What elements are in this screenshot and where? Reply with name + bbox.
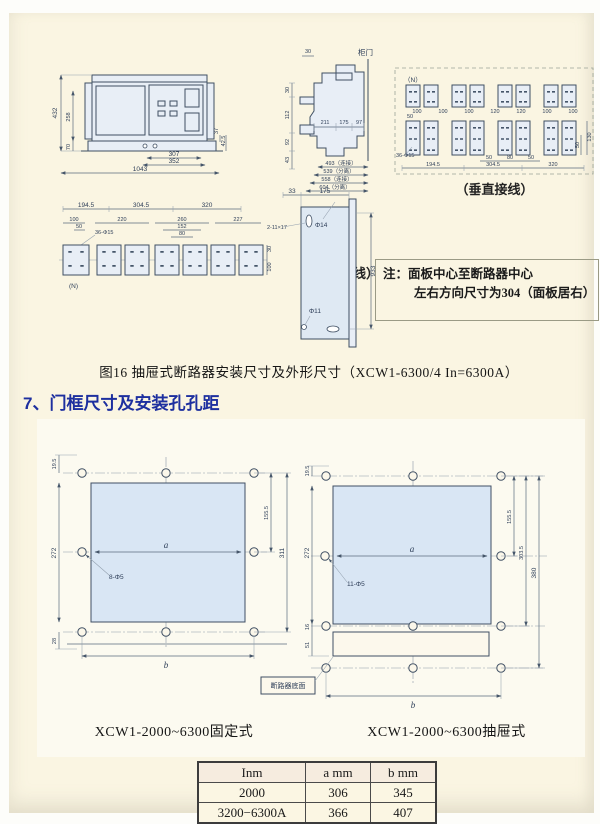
dim-211: 211 — [321, 120, 330, 126]
dim-97: 97 — [356, 120, 362, 126]
dim-272: 272 — [51, 547, 58, 558]
svg-text:100: 100 — [542, 109, 551, 115]
breaker-front-outline — [81, 75, 223, 151]
dim-43: 43 — [285, 157, 291, 163]
dim-16: 16 — [305, 624, 311, 630]
dim-30-top: 30 — [305, 49, 311, 55]
panel-top-dims: 33 175 — [283, 188, 349, 207]
vertical-wiring-drawing: （N） 100 100 100 120 120 100 100 50 — [392, 65, 597, 177]
hole-phi14-label: Φ14 — [315, 222, 328, 229]
col-header-inm: Inm — [198, 762, 306, 783]
dim-92: 92 — [285, 139, 291, 145]
dim-a: a — [164, 540, 169, 550]
dim-493-connected: 493（连接） — [325, 159, 356, 167]
svg-text:50: 50 — [76, 224, 82, 230]
vertical-wiring-mid-dims: 100 100 100 120 120 100 100 50 — [407, 109, 578, 120]
note-line-1: 注：面板中心至断路器中心 — [383, 265, 591, 284]
cabinet-door-label: 柜门 — [358, 47, 373, 57]
svg-text:120: 120 — [490, 109, 499, 115]
dim-432: 432 — [52, 107, 59, 118]
svg-text:194.5: 194.5 — [426, 162, 440, 168]
svg-text:120: 120 — [516, 109, 525, 115]
svg-text:50: 50 — [486, 155, 492, 161]
svg-text:194.5: 194.5 — [78, 202, 95, 209]
dim-b: b — [164, 660, 169, 670]
cell-a-3200: 366 — [306, 803, 371, 824]
hole-count-label: 8-Φ5 — [109, 574, 124, 581]
hole-spec-label: 36-Φ15 — [95, 230, 113, 236]
note-line-2: 左右方向尺寸为304（面板居右） — [414, 284, 591, 303]
panel-plate-drawing: 33 175 2-11×17 Φ14 Φ11 933 — [265, 185, 389, 357]
svg-text:304.5: 304.5 — [133, 202, 150, 209]
horizontal-terminal-blocks — [59, 245, 267, 275]
dim-51: 51 — [305, 642, 311, 648]
svg-text:33: 33 — [288, 188, 296, 195]
scanned-page: 432 258 70 37 42.5 307 352 1043 柜门 — [9, 13, 594, 813]
svg-text:260: 260 — [177, 217, 186, 223]
breaker-side-profile — [300, 65, 364, 156]
upper-terminal-blocks — [406, 85, 576, 107]
svg-text:100: 100 — [464, 109, 473, 115]
door-window — [333, 486, 491, 624]
table-row: 2000 306 345 — [198, 783, 436, 803]
svg-text:220: 220 — [117, 217, 126, 223]
svg-text:50: 50 — [575, 142, 581, 148]
svg-text:152: 152 — [177, 224, 186, 230]
hole-spec-label: 36-Φ15 — [396, 153, 414, 159]
panel-plate-outline — [301, 199, 356, 347]
dim-50-small: 50 — [407, 114, 413, 120]
side-view-drawing: 柜门 30 30 112 92 43 211 175 97 493（连 — [252, 39, 404, 197]
col-header-a: a mm — [306, 762, 371, 783]
cell-b-3200: 407 — [371, 803, 437, 824]
dim-352: 352 — [169, 158, 180, 165]
slot-spec-label: 2-11×17 — [267, 225, 287, 231]
dim-b: b — [411, 700, 416, 710]
svg-text:100: 100 — [412, 109, 421, 115]
dim-307: 307 — [169, 151, 180, 158]
section7-heading: 7、门框尺寸及安装孔孔距 — [23, 389, 219, 414]
svg-text:227: 227 — [233, 217, 242, 223]
fixed-type-caption: XCW1-2000~6300固定式 — [69, 721, 279, 741]
dim-175: 175 — [339, 120, 348, 126]
col-header-b: b mm — [371, 762, 437, 783]
svg-text:320: 320 — [548, 162, 557, 168]
horizontal-wiring-sub-dims: 100 50 220 260 152 80 227 36-Φ15 — [63, 217, 261, 245]
dim-19-5: 19.5 — [52, 459, 58, 470]
svg-text:130: 130 — [587, 132, 593, 141]
neutral-label: （N） — [404, 76, 422, 84]
dim-19-5: 19.5 — [305, 466, 311, 477]
door-window — [91, 483, 245, 622]
svg-text:80: 80 — [507, 155, 513, 161]
cell-inm-3200: 3200−6300A — [198, 803, 306, 824]
svg-text:100: 100 — [438, 109, 447, 115]
drawout-door-frame-drawing: a 11-Φ5 19.5 272 16 51 155.5 303.5 380 b — [255, 441, 559, 719]
dim-a: a — [410, 544, 415, 554]
dim-1043: 1043 — [133, 166, 148, 173]
vertical-wiring-caption: （垂直接线） — [407, 179, 582, 198]
lower-cutout — [333, 632, 489, 656]
cell-b-2000: 345 — [371, 783, 437, 803]
horizontal-wiring-span-dims: 194.5 304.5 320 — [63, 202, 241, 212]
dim-28: 28 — [52, 638, 58, 644]
hole-phi11-label: Φ11 — [309, 308, 321, 315]
dim-258: 258 — [66, 112, 72, 121]
svg-text:175: 175 — [320, 188, 331, 195]
svg-text:80: 80 — [179, 231, 185, 237]
svg-text:50: 50 — [528, 155, 534, 161]
dim-37: 37 — [214, 128, 220, 134]
dim-42-5: 42.5 — [221, 136, 227, 147]
dim-558-connected: 558（连接） — [321, 175, 352, 183]
dim-155-5: 155.5 — [507, 510, 513, 524]
svg-text:304.5: 304.5 — [486, 162, 500, 168]
drawout-type-caption: XCW1-2000~6300抽屉式 — [339, 721, 554, 741]
front-view-drawing: 432 258 70 37 42.5 307 352 1043 — [39, 63, 234, 181]
figure16-caption: 图16 抽屉式断路器安装尺寸及外形尺寸（XCW1-6300/4 In=6300A… — [9, 361, 600, 381]
dim-303-5: 303.5 — [519, 546, 525, 560]
dim-539-separated: 539（分离） — [323, 167, 354, 175]
dim-380: 380 — [531, 567, 538, 578]
horizontal-wiring-drawing: 194.5 304.5 320 100 50 220 260 152 80 22… — [51, 199, 275, 295]
dim-112: 112 — [285, 111, 291, 120]
cell-inm-2000: 2000 — [198, 783, 306, 803]
table-row: 3200−6300A 366 407 — [198, 803, 436, 824]
breaker-bottom-label: 断路器底面 — [271, 681, 306, 690]
table-header-row: Inm a mm b mm — [198, 762, 436, 783]
dim-30-left: 30 — [285, 87, 291, 93]
side-view-dimensions: 30 30 112 92 43 211 175 97 493（连接） 539（分… — [285, 49, 368, 191]
dim-272: 272 — [304, 547, 311, 558]
cell-a-2000: 306 — [306, 783, 371, 803]
hole-count-label: 11-Φ5 — [347, 581, 365, 588]
dim-70: 70 — [66, 144, 72, 150]
neutral-label: (N) — [69, 283, 78, 290]
lower-terminal-blocks — [406, 121, 576, 155]
svg-text:100: 100 — [69, 217, 78, 223]
svg-text:100: 100 — [568, 109, 577, 115]
dimension-table: Inm a mm b mm 2000 306 345 3200−6300A 36… — [197, 761, 437, 824]
svg-text:320: 320 — [202, 202, 213, 209]
note-box: 注：面板中心至断路器中心 左右方向尺寸为304（面板居右） — [375, 259, 599, 321]
